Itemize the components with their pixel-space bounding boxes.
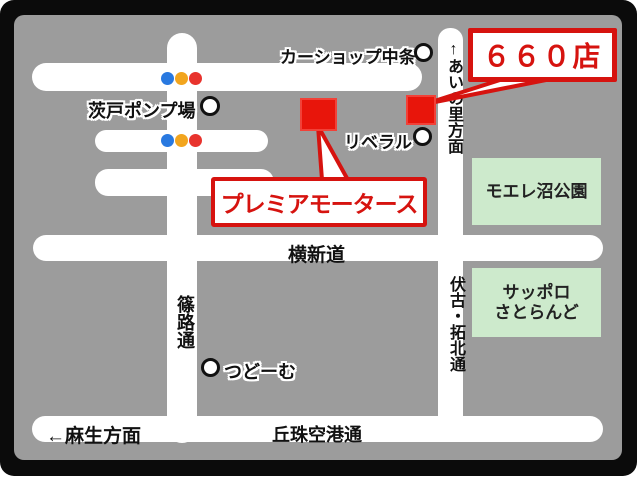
ainosato-direction-label: ↑あいの里方面 bbox=[441, 41, 465, 154]
dealer-location-marker bbox=[300, 98, 337, 131]
carshop-circle-icon bbox=[414, 43, 433, 62]
shinoro-road-label: 篠路通 bbox=[172, 295, 198, 349]
asabu-direction-label: ←麻生方面 bbox=[46, 421, 141, 448]
carshop-nakajo-label: カーショップ中条 bbox=[280, 43, 416, 68]
yokoshindo-road-label: 横新道 bbox=[288, 240, 345, 267]
tsudome-circle-icon bbox=[201, 358, 220, 377]
liberal-label: リベラル bbox=[344, 128, 412, 153]
sapporo-satoland-area: サッポロ さとらんど bbox=[472, 268, 601, 337]
branch-location-marker bbox=[406, 95, 436, 125]
tsudome-label: つどーむ bbox=[224, 358, 296, 384]
signal-yellow-icon bbox=[175, 134, 188, 147]
traffic-light-top bbox=[161, 72, 202, 85]
pump-station-label: 茨戸ポンプ場 bbox=[88, 97, 195, 123]
sapporo-satoland-line1: サッポロ bbox=[503, 283, 571, 302]
sapporo-satoland-line2: さとらんど bbox=[494, 303, 579, 322]
pump-station-circle-icon bbox=[200, 96, 220, 116]
signal-blue-icon bbox=[161, 134, 174, 147]
store-660-badge: ６６０店 bbox=[468, 28, 617, 82]
sapporo-satoland-label: サッポロ さとらんど bbox=[494, 283, 579, 323]
okadama-airport-road-label: 丘珠空港通 bbox=[272, 421, 362, 447]
signal-red-icon bbox=[189, 134, 202, 147]
traffic-light-middle bbox=[161, 134, 202, 147]
signal-red-icon bbox=[189, 72, 202, 85]
signal-yellow-icon bbox=[175, 72, 188, 85]
access-map: モエレ沼公園 サッポロ さとらんど カーショップ中条 茨戸ポンプ場 リベラル つ… bbox=[0, 0, 640, 480]
dealer-name-callout: プレミアモータース bbox=[211, 177, 427, 227]
moere-numa-park-label: モエレ沼公園 bbox=[486, 182, 588, 202]
fushiko-takuhoku-road-label: 伏古・拓北通 bbox=[443, 276, 467, 372]
liberal-circle-icon bbox=[413, 127, 432, 146]
signal-blue-icon bbox=[161, 72, 174, 85]
moere-numa-park-area: モエレ沼公園 bbox=[472, 158, 601, 225]
